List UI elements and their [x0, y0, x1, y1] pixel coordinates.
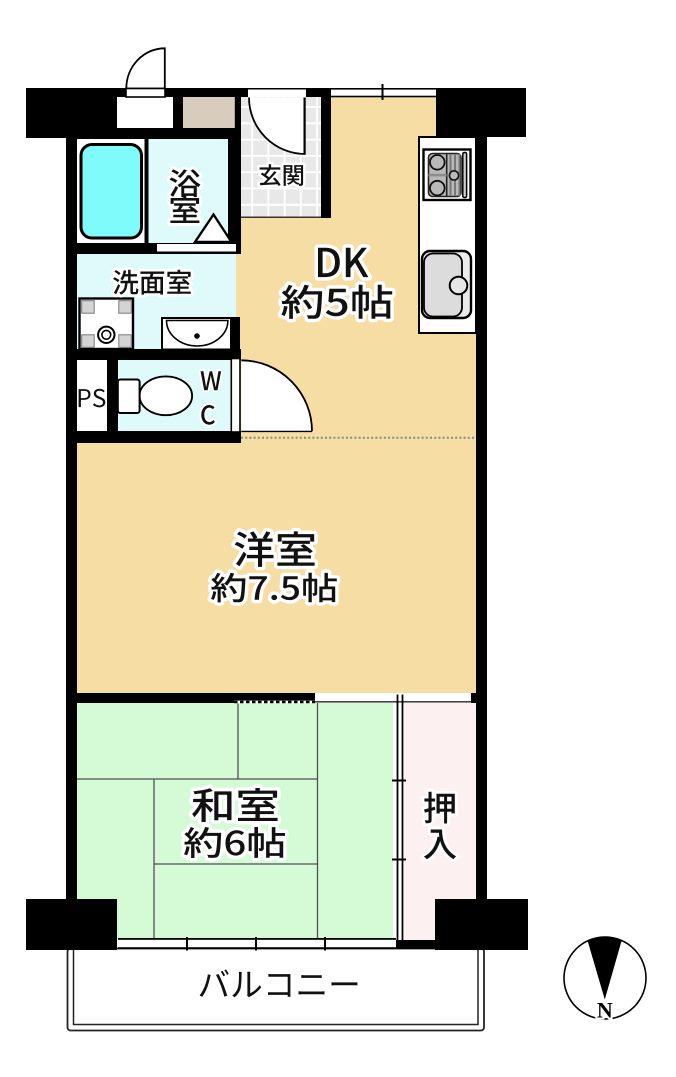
svg-text:N: N	[597, 998, 613, 1023]
